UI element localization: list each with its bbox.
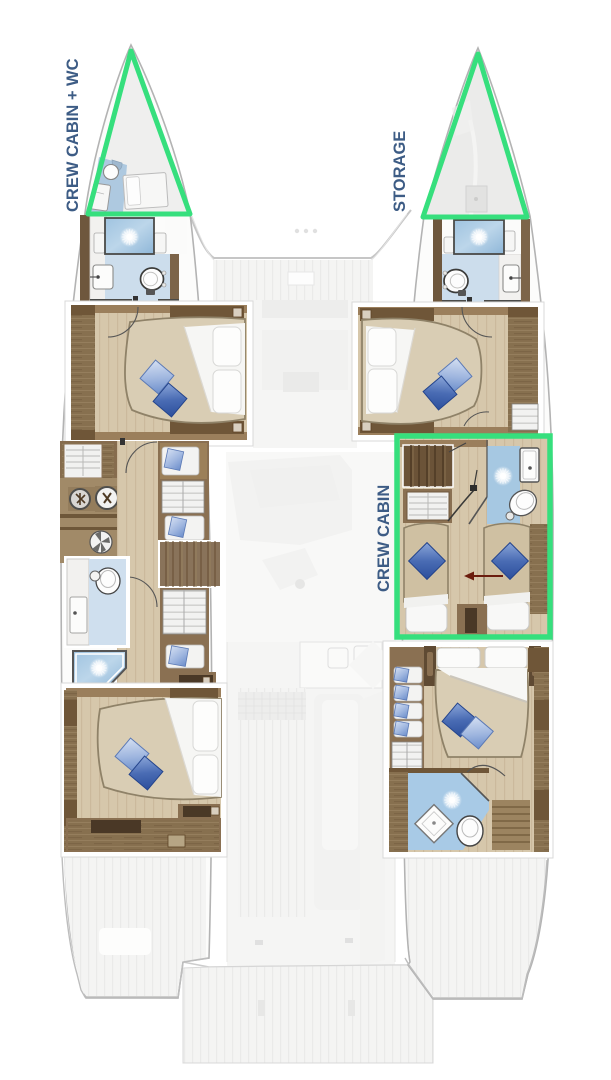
svg-text:CREW CABIN: CREW CABIN	[375, 485, 393, 592]
svg-text:CREW CABIN + WC: CREW CABIN + WC	[64, 58, 82, 212]
svg-text:STORAGE: STORAGE	[391, 131, 409, 212]
